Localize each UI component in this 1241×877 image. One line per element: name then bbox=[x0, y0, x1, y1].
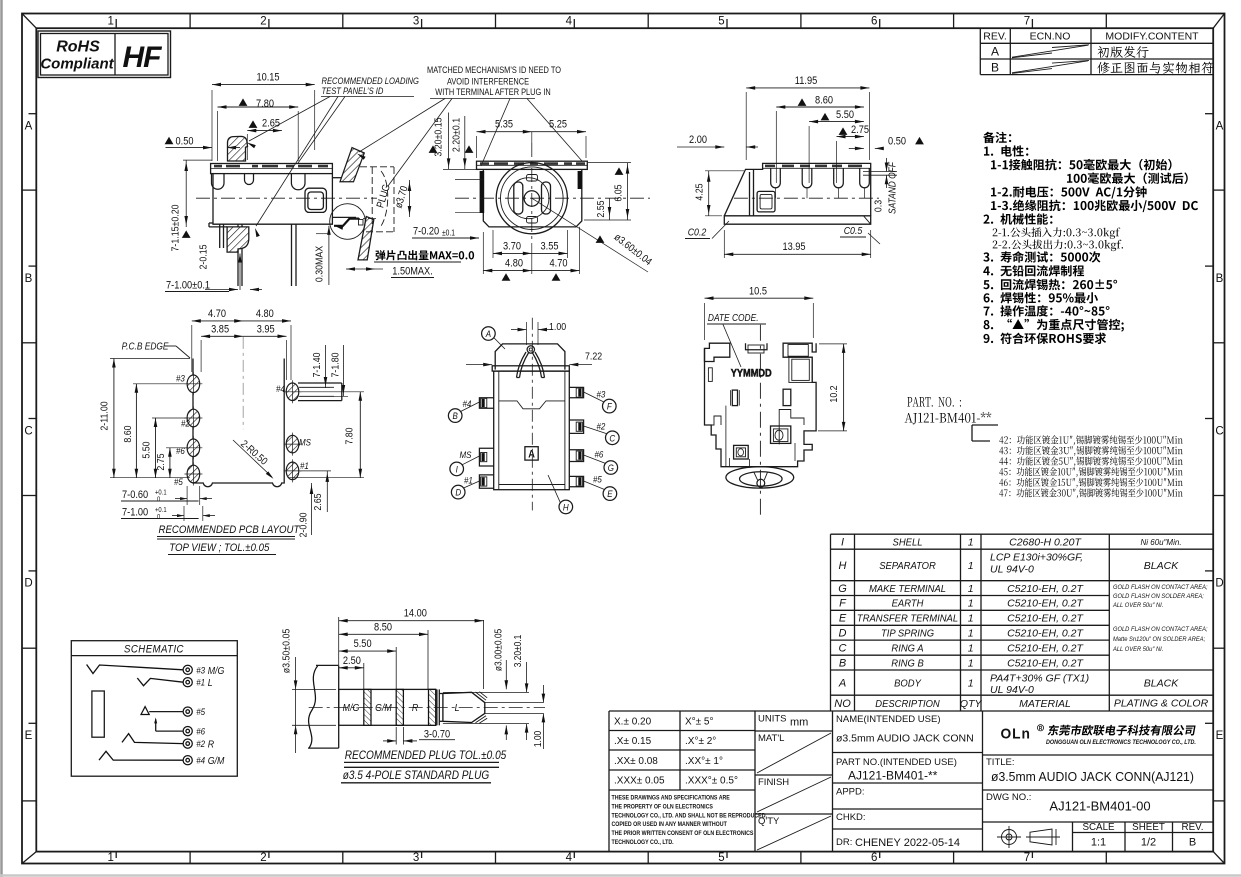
svg-text:.XX°± 1°: .XX°± 1° bbox=[685, 756, 723, 767]
svg-text:2.75: 2.75 bbox=[851, 124, 869, 136]
svg-text:3-0.70: 3-0.70 bbox=[424, 729, 450, 741]
svg-text:WITH TERMINAL AFTER PLUG I: WITH TERMINAL AFTER PLUG IN bbox=[435, 86, 550, 97]
svg-text:1: 1 bbox=[968, 583, 974, 595]
svg-text:2-11.00: 2-11.00 bbox=[99, 401, 111, 431]
svg-text:#5: #5 bbox=[174, 476, 183, 487]
svg-text:#2: #2 bbox=[597, 421, 606, 432]
svg-text:1: 1 bbox=[107, 16, 113, 28]
svg-text:SCHEMATIC: SCHEMATIC bbox=[124, 643, 184, 656]
svg-text:RECOMMENDED PCB LAYOUT: RECOMMENDED PCB LAYOUT bbox=[159, 523, 301, 536]
svg-text:5.50: 5.50 bbox=[836, 109, 854, 121]
svg-text:FINISH: FINISH bbox=[758, 777, 789, 788]
svg-text:TECHNOLOGY CO., LTD.: TECHNOLOGY CO., LTD. bbox=[612, 840, 674, 846]
svg-text:7-1.40: 7-1.40 bbox=[312, 352, 324, 378]
svg-text:#6: #6 bbox=[196, 726, 205, 737]
svg-text:2.75: 2.75 bbox=[155, 453, 167, 470]
svg-text:5.50: 5.50 bbox=[354, 638, 372, 650]
svg-text:C2680-H 0.20T: C2680-H 0.20T bbox=[1009, 537, 1082, 549]
svg-text:5: 5 bbox=[718, 852, 724, 864]
svg-text:M/G: M/G bbox=[343, 702, 360, 714]
svg-text:A: A bbox=[25, 121, 33, 133]
svg-text:C0.5: C0.5 bbox=[844, 225, 863, 237]
svg-text:.XXX± 0.05: .XXX± 0.05 bbox=[614, 776, 665, 787]
svg-text:SHEET: SHEET bbox=[1132, 822, 1165, 833]
svg-text:#4: #4 bbox=[276, 383, 285, 394]
svg-text:6: 6 bbox=[871, 852, 877, 864]
svg-text:7.80: 7.80 bbox=[256, 98, 274, 110]
svg-text:2-0.90: 2-0.90 bbox=[298, 512, 310, 538]
svg-text:4: 4 bbox=[566, 16, 573, 28]
svg-text:7-1.80: 7-1.80 bbox=[330, 352, 342, 378]
svg-text:7.22: 7.22 bbox=[585, 351, 602, 363]
svg-text:10.2: 10.2 bbox=[829, 385, 841, 402]
svg-text:C5210-EH, 0.2T: C5210-EH, 0.2T bbox=[1007, 583, 1084, 595]
svg-text:DATE CODE.: DATE CODE. bbox=[708, 312, 759, 323]
svg-text:#6: #6 bbox=[595, 449, 604, 460]
svg-text:B: B bbox=[991, 61, 999, 75]
svg-text:Q'TY: Q'TY bbox=[758, 816, 780, 827]
svg-text:A: A bbox=[1216, 121, 1224, 133]
svg-text:4.70: 4.70 bbox=[208, 308, 226, 320]
svg-text:#3: #3 bbox=[597, 389, 606, 400]
svg-text:YYMMDD: YYMMDD bbox=[731, 368, 772, 380]
svg-text:.X°± 2°: .X°± 2° bbox=[685, 736, 716, 747]
svg-text:2.00: 2.00 bbox=[689, 134, 707, 146]
svg-text:QTY: QTY bbox=[960, 698, 983, 710]
svg-text:UL 94V-0: UL 94V-0 bbox=[990, 564, 1034, 576]
svg-text:C5210-EH, 0.2T: C5210-EH, 0.2T bbox=[1007, 657, 1084, 669]
svg-text:6: 6 bbox=[871, 16, 877, 28]
svg-text:C: C bbox=[839, 643, 847, 655]
svg-text:2.65: 2.65 bbox=[262, 118, 280, 130]
svg-text:C5210-EH, 0.2T: C5210-EH, 0.2T bbox=[1007, 628, 1084, 640]
svg-text:AJ121-BM401-00: AJ121-BM401-00 bbox=[1049, 799, 1150, 814]
svg-text:D: D bbox=[24, 578, 32, 590]
svg-text:#1: #1 bbox=[300, 460, 309, 471]
svg-text:SCALE: SCALE bbox=[1082, 822, 1115, 833]
svg-text:3.95: 3.95 bbox=[257, 324, 275, 336]
svg-text:THE PROPERTY OF OLN ELECTRONIC: THE PROPERTY OF OLN ELECTRONICS bbox=[612, 804, 714, 810]
svg-text:1: 1 bbox=[968, 643, 974, 655]
svg-text:0.50: 0.50 bbox=[176, 136, 194, 148]
svg-text:NAME(INTENDED USE): NAME(INTENDED USE) bbox=[836, 714, 941, 725]
svg-text:BLACK: BLACK bbox=[1144, 678, 1179, 690]
svg-text:10.5: 10.5 bbox=[749, 286, 767, 298]
svg-text:REV.: REV. bbox=[1182, 822, 1204, 833]
svg-text:F: F bbox=[607, 401, 612, 412]
svg-text:RING B: RING B bbox=[891, 658, 924, 670]
svg-text:EARTH: EARTH bbox=[892, 598, 925, 610]
svg-text:4.25: 4.25 bbox=[694, 183, 706, 200]
svg-text:MS: MS bbox=[299, 437, 311, 448]
svg-text:3: 3 bbox=[413, 852, 419, 864]
svg-text:4: 4 bbox=[566, 852, 573, 864]
svg-text:C: C bbox=[609, 433, 615, 444]
svg-text:B: B bbox=[453, 410, 458, 421]
svg-text:MAT'L: MAT'L bbox=[758, 733, 784, 744]
svg-text:ALL OVER 50u″ NI.: ALL OVER 50u″ NI. bbox=[1112, 602, 1163, 610]
svg-text:THE PRIOR WRITTEN CONSENT OF O: THE PRIOR WRITTEN CONSENT OF OLN ELECTRO… bbox=[612, 831, 754, 837]
svg-text:G/M: G/M bbox=[208, 756, 225, 768]
svg-text:Compliant: Compliant bbox=[40, 56, 114, 73]
svg-text:#2: #2 bbox=[196, 738, 205, 749]
svg-text:1: 1 bbox=[968, 560, 974, 572]
svg-text:C5210-EH, 0.2T: C5210-EH, 0.2T bbox=[1007, 598, 1084, 610]
svg-text:7-1.00: 7-1.00 bbox=[122, 507, 148, 519]
svg-text:E: E bbox=[839, 613, 847, 625]
svg-text:A: A bbox=[485, 328, 491, 339]
svg-text:APPD:: APPD: bbox=[836, 787, 865, 798]
svg-text:ø3.00±0.05: ø3.00±0.05 bbox=[493, 629, 504, 671]
svg-text:3.85: 3.85 bbox=[211, 324, 229, 336]
svg-text:#1: #1 bbox=[196, 677, 205, 688]
svg-text:ALL OVER 50u″ NI.: ALL OVER 50u″ NI. bbox=[1112, 646, 1163, 654]
svg-text:.XXX°± 0.5°: .XXX°± 0.5° bbox=[685, 776, 738, 787]
svg-text:3.20±0.1: 3.20±0.1 bbox=[512, 635, 523, 668]
svg-text:D: D bbox=[839, 628, 847, 640]
svg-text:D: D bbox=[455, 487, 461, 498]
svg-text:#3: #3 bbox=[196, 665, 205, 676]
svg-text:TRANSFER TERMINAL: TRANSFER TERMINAL bbox=[857, 613, 958, 625]
svg-text:7-1.15±0.20: 7-1.15±0.20 bbox=[170, 204, 182, 252]
svg-text:#6: #6 bbox=[176, 445, 185, 456]
svg-text:ECN.NO: ECN.NO bbox=[1030, 31, 1071, 43]
svg-text:4.80: 4.80 bbox=[505, 258, 523, 270]
svg-text:AVOID INTERFERENCE: AVOID INTERFERENCE bbox=[447, 76, 529, 87]
svg-text:2: 2 bbox=[260, 852, 266, 864]
svg-text:1.00: 1.00 bbox=[532, 731, 543, 747]
svg-text:DONGGUAN OLN ELECTRONICS TECHN: DONGGUAN OLN ELECTRONICS TECHNOLOGY CO.,… bbox=[1046, 740, 1196, 746]
svg-text:TEST PANEL’S ID: TEST PANEL’S ID bbox=[322, 85, 384, 96]
svg-text:5.35: 5.35 bbox=[495, 119, 513, 131]
svg-text:UNITS: UNITS bbox=[758, 714, 787, 725]
svg-text:ø3.5mm AUDIO JACK CONN(AJ121): ø3.5mm AUDIO JACK CONN(AJ121) bbox=[991, 770, 1194, 784]
svg-text:D: D bbox=[1215, 578, 1223, 590]
svg-text:3.55: 3.55 bbox=[541, 241, 559, 253]
svg-text:AJ121-BM401-**: AJ121-BM401-** bbox=[848, 769, 938, 783]
svg-text:H: H bbox=[839, 560, 847, 572]
svg-text:BODY: BODY bbox=[894, 678, 922, 690]
svg-text:MODIFY.CONTENT: MODIFY.CONTENT bbox=[1105, 31, 1199, 43]
svg-text:±0.1: ±0.1 bbox=[442, 228, 455, 238]
svg-text:7: 7 bbox=[1024, 852, 1030, 864]
svg-text:1:1: 1:1 bbox=[1091, 837, 1106, 849]
svg-text:1: 1 bbox=[968, 677, 974, 689]
svg-text:#1: #1 bbox=[464, 475, 473, 486]
svg-text:THESE DRAWINGS AND SPECIFICATI: THESE DRAWINGS AND SPECIFICATIONS ARE bbox=[612, 795, 730, 801]
svg-text:GOLD FLASH ON SOLDER AREA;: GOLD FLASH ON SOLDER AREA; bbox=[1113, 593, 1204, 601]
svg-text:2.65: 2.65 bbox=[312, 493, 324, 510]
svg-text:0: 0 bbox=[157, 496, 161, 504]
svg-text:5.25: 5.25 bbox=[549, 119, 567, 131]
svg-text:G: G bbox=[838, 583, 847, 595]
svg-text:.X± 0.15: .X± 0.15 bbox=[614, 736, 652, 747]
svg-text:L: L bbox=[208, 678, 213, 690]
svg-text:UL 94V-0: UL 94V-0 bbox=[990, 684, 1034, 696]
svg-text:Ni 60u″Min.: Ni 60u″Min. bbox=[1140, 538, 1181, 547]
svg-text:CHKD:: CHKD: bbox=[836, 812, 866, 823]
svg-text:G: G bbox=[608, 462, 614, 473]
svg-text:8.60: 8.60 bbox=[122, 425, 134, 443]
svg-text:TIP SPRING: TIP SPRING bbox=[881, 628, 934, 640]
svg-text:CHENEY 2022-05-14: CHENEY 2022-05-14 bbox=[855, 837, 960, 849]
svg-text:ø3.50±0.05: ø3.50±0.05 bbox=[281, 629, 293, 674]
svg-text:I: I bbox=[841, 537, 844, 549]
svg-text:7-1.00±0.1: 7-1.00±0.1 bbox=[166, 280, 210, 292]
svg-text:#4: #4 bbox=[463, 398, 472, 409]
svg-text:TECHNOLOGY CO., LTD. AND SHALL: TECHNOLOGY CO., LTD. AND SHALL NOT BE RE… bbox=[612, 813, 768, 819]
svg-text:B: B bbox=[1216, 273, 1224, 285]
svg-text:1.50MAX.: 1.50MAX. bbox=[392, 266, 433, 278]
svg-text:5.50: 5.50 bbox=[141, 441, 153, 459]
svg-text:4.80: 4.80 bbox=[256, 308, 274, 320]
svg-text:SATAND OFF: SATAND OFF bbox=[887, 161, 898, 214]
svg-text:10.15: 10.15 bbox=[256, 72, 279, 84]
svg-text:6.05: 6.05 bbox=[613, 184, 625, 201]
svg-text:B: B bbox=[839, 657, 846, 669]
svg-text:R: R bbox=[208, 739, 214, 751]
svg-text:5: 5 bbox=[718, 16, 724, 28]
svg-text:LCP E130i+30%GF,: LCP E130i+30%GF, bbox=[990, 552, 1083, 564]
svg-text:B: B bbox=[1189, 837, 1196, 849]
svg-text:1/2: 1/2 bbox=[1141, 837, 1156, 849]
svg-text:E: E bbox=[25, 730, 33, 742]
svg-text:MS: MS bbox=[460, 449, 472, 460]
svg-text:OLn: OLn bbox=[1001, 725, 1031, 741]
svg-text:C5210-EH, 0.2T: C5210-EH, 0.2T bbox=[1007, 613, 1084, 625]
svg-text:DESCRIPTION: DESCRIPTION bbox=[875, 698, 940, 710]
svg-text:7-0.60: 7-0.60 bbox=[122, 489, 148, 501]
svg-text:#5: #5 bbox=[593, 474, 602, 485]
svg-text:PLATING & COLOR: PLATING & COLOR bbox=[1114, 698, 1209, 710]
svg-text:RECOMMENDED PLUG TOL.±0.05: RECOMMENDED PLUG TOL.±0.05 bbox=[345, 749, 507, 762]
svg-text:TITLE:: TITLE: bbox=[986, 757, 1015, 768]
svg-text:0.30MAX: 0.30MAX bbox=[314, 245, 326, 282]
svg-text:0: 0 bbox=[157, 514, 161, 522]
svg-text:7.80: 7.80 bbox=[344, 427, 356, 445]
svg-text:BLACK: BLACK bbox=[1144, 560, 1179, 572]
svg-text:MAKE TERMINAL: MAKE TERMINAL bbox=[869, 583, 946, 595]
svg-text:P.C.B EDGE: P.C.B EDGE bbox=[122, 341, 170, 352]
svg-text:11.95: 11.95 bbox=[795, 75, 818, 87]
svg-text:1: 1 bbox=[107, 852, 113, 864]
svg-text:PA4T+30% GF (TX1): PA4T+30% GF (TX1) bbox=[990, 673, 1089, 685]
svg-text:1: 1 bbox=[968, 537, 974, 549]
svg-text:1: 1 bbox=[968, 613, 974, 625]
svg-text:REV.: REV. bbox=[983, 31, 1007, 43]
svg-text:DR:: DR: bbox=[836, 837, 852, 848]
svg-text:DWG NO.:: DWG NO.: bbox=[986, 792, 1031, 803]
svg-text:X.± 0.20: X.± 0.20 bbox=[614, 717, 652, 728]
svg-text:13.95: 13.95 bbox=[782, 241, 805, 253]
svg-text:NO: NO bbox=[834, 698, 851, 710]
svg-text:7: 7 bbox=[1024, 16, 1030, 28]
svg-text:G/M: G/M bbox=[375, 702, 392, 714]
svg-text:RING A: RING A bbox=[891, 643, 923, 655]
svg-text:8.60: 8.60 bbox=[815, 95, 833, 107]
svg-text:GOLD FLASH ON CONTACT AREA;: GOLD FLASH ON CONTACT AREA; bbox=[1113, 626, 1208, 634]
svg-text:14.00: 14.00 bbox=[404, 608, 427, 620]
svg-text:A: A bbox=[991, 45, 999, 59]
svg-text:8.50: 8.50 bbox=[374, 622, 392, 634]
svg-text:#4: #4 bbox=[196, 755, 205, 766]
svg-text:MATERIAL: MATERIAL bbox=[1019, 698, 1071, 710]
svg-text:1: 1 bbox=[968, 598, 974, 610]
svg-text:SEPARATOR: SEPARATOR bbox=[879, 560, 936, 572]
svg-text:7-0.20: 7-0.20 bbox=[413, 226, 439, 238]
svg-text:4.70: 4.70 bbox=[550, 258, 568, 270]
svg-text:2.55: 2.55 bbox=[596, 200, 608, 217]
svg-text:E: E bbox=[1216, 730, 1224, 742]
svg-text:3.70: 3.70 bbox=[503, 241, 521, 253]
svg-text:SHELL: SHELL bbox=[893, 537, 923, 549]
svg-text:2.20±0.1: 2.20±0.1 bbox=[451, 118, 463, 152]
svg-text:B: B bbox=[25, 273, 33, 285]
svg-text:C0.2: C0.2 bbox=[688, 227, 707, 239]
svg-text:PART NO.(INTENDED USE): PART NO.(INTENDED USE) bbox=[836, 757, 957, 768]
svg-text:GOLD FLASH ON CONTACT AREA;: GOLD FLASH ON CONTACT AREA; bbox=[1113, 584, 1208, 592]
svg-text:#5: #5 bbox=[196, 706, 205, 717]
svg-text:A: A bbox=[838, 677, 846, 689]
svg-text:#3: #3 bbox=[176, 373, 185, 384]
svg-text:R: R bbox=[412, 702, 418, 714]
svg-text:1.00: 1.00 bbox=[549, 321, 567, 333]
svg-text:mm: mm bbox=[790, 717, 808, 729]
svg-text:C: C bbox=[1215, 425, 1223, 437]
svg-text:3: 3 bbox=[413, 16, 419, 28]
svg-text:.XX± 0.08: .XX± 0.08 bbox=[614, 756, 658, 767]
svg-text:2-0.15: 2-0.15 bbox=[198, 245, 210, 270]
svg-text:MATCHED MECHANISM’S ID NEED: MATCHED MECHANISM’S ID NEED TO bbox=[427, 64, 561, 75]
svg-text:H: H bbox=[563, 502, 569, 513]
svg-text:Matte Sn120u″ ON SOLDER AREA;: Matte Sn120u″ ON SOLDER AREA; bbox=[1113, 636, 1205, 644]
svg-text:L: L bbox=[455, 702, 460, 714]
svg-text:ø3.5 4-POLE STANDARD PLUG: ø3.5 4-POLE STANDARD PLUG bbox=[343, 769, 490, 782]
svg-text:2.50: 2.50 bbox=[343, 655, 361, 667]
svg-text:1: 1 bbox=[968, 628, 974, 640]
svg-text:X°± 5°: X°± 5° bbox=[685, 717, 714, 728]
svg-text:TOP VIEW ; TOL.±0.05: TOP VIEW ; TOL.±0.05 bbox=[169, 541, 269, 554]
svg-text:R: R bbox=[1039, 726, 1043, 732]
svg-text:E: E bbox=[607, 488, 612, 499]
svg-text:0.3: 0.3 bbox=[873, 200, 885, 212]
svg-text:0.50: 0.50 bbox=[888, 136, 906, 148]
svg-text:C: C bbox=[24, 425, 32, 437]
svg-text:#2: #2 bbox=[181, 418, 190, 429]
svg-text:HF: HF bbox=[123, 41, 163, 74]
svg-text:2: 2 bbox=[260, 16, 266, 28]
svg-text:ø3.5mm AUDIO JACK CONN: ø3.5mm AUDIO JACK CONN bbox=[836, 733, 974, 745]
svg-text:COPIED OR USED IN ANY MANNER W: COPIED OR USED IN ANY MANNER WITHOUT bbox=[612, 822, 728, 828]
svg-text:RoHS: RoHS bbox=[56, 39, 100, 56]
svg-text:C5210-EH, 0.2T: C5210-EH, 0.2T bbox=[1007, 643, 1084, 655]
svg-text:M/G: M/G bbox=[208, 665, 225, 677]
svg-text:1: 1 bbox=[968, 657, 974, 669]
